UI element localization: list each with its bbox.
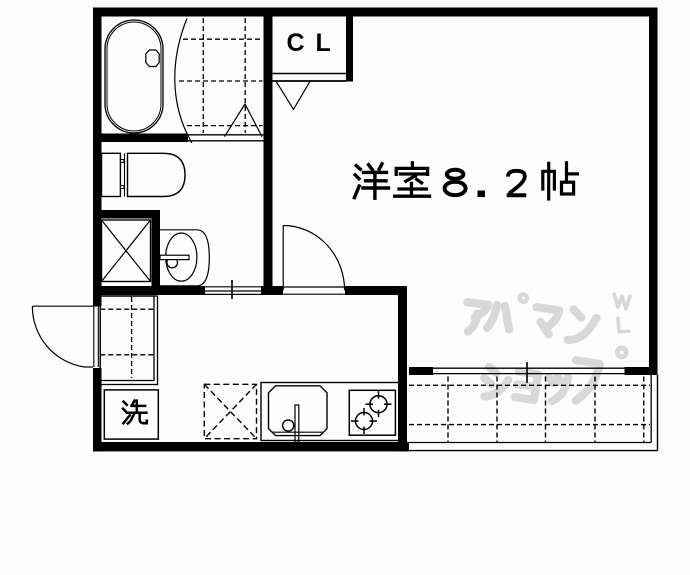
svg-text:CL: CL [287,29,342,57]
